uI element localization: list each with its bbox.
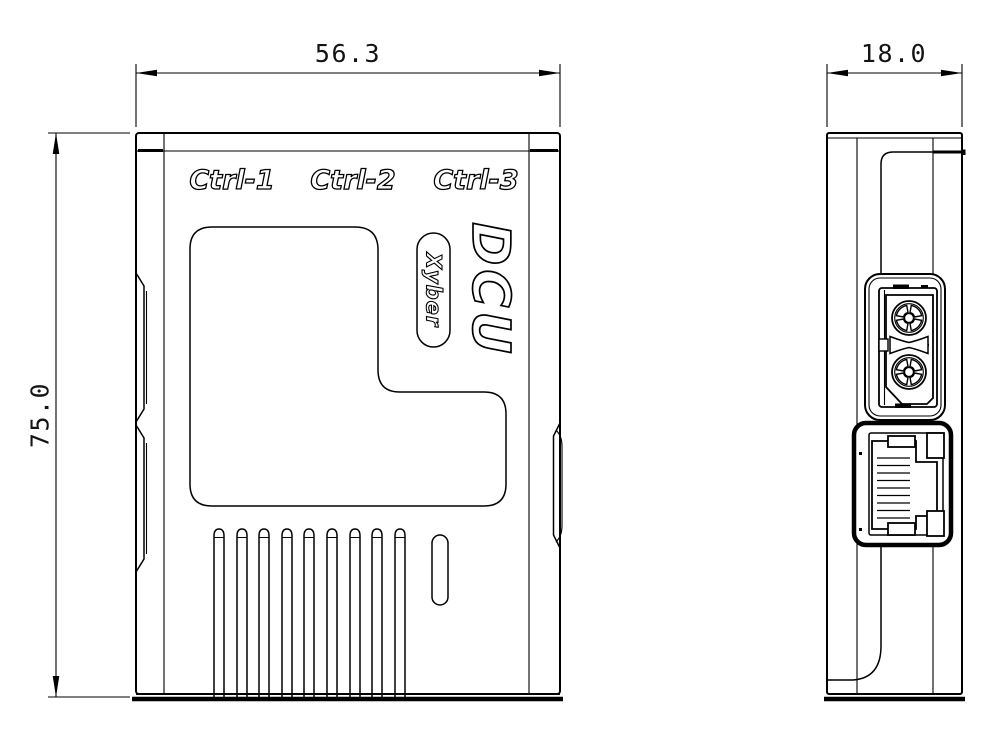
port-label-ctrl2: Ctrl-2 bbox=[310, 165, 395, 196]
side-depth-value: 18.0 bbox=[861, 39, 927, 68]
rj45-tab-bottom bbox=[888, 523, 915, 535]
rj45-dot-bottom bbox=[859, 528, 862, 531]
side-top-nub bbox=[961, 150, 966, 156]
technical-drawing-page: Ctrl-1 Ctrl-2 Ctrl-3 DCU Xyber bbox=[0, 0, 1000, 737]
rj45-tab-top bbox=[888, 436, 915, 447]
power-connector bbox=[865, 274, 945, 420]
brand-text: Xyber bbox=[422, 251, 446, 328]
rj45-shield-bottom bbox=[927, 511, 944, 536]
product-name-text: DCU bbox=[460, 222, 520, 358]
ethernet-port bbox=[854, 423, 951, 545]
vent-slats bbox=[214, 529, 405, 699]
power-pin-top bbox=[892, 301, 926, 335]
sheet-background bbox=[0, 0, 1000, 737]
power-pin-bottom bbox=[892, 355, 926, 389]
connector-key-top-2 bbox=[921, 285, 928, 289]
port-labels: Ctrl-1 Ctrl-2 Ctrl-3 bbox=[189, 165, 518, 196]
front-height-value: 75.0 bbox=[26, 382, 55, 448]
port-label-ctrl1: Ctrl-1 bbox=[189, 165, 274, 196]
rj45-shield-top bbox=[927, 433, 944, 458]
front-width-value: 56.3 bbox=[315, 39, 381, 68]
connector-key-top bbox=[893, 285, 909, 290]
rj45-dot-top bbox=[859, 452, 862, 455]
port-label-ctrl3: Ctrl-3 bbox=[433, 165, 518, 196]
